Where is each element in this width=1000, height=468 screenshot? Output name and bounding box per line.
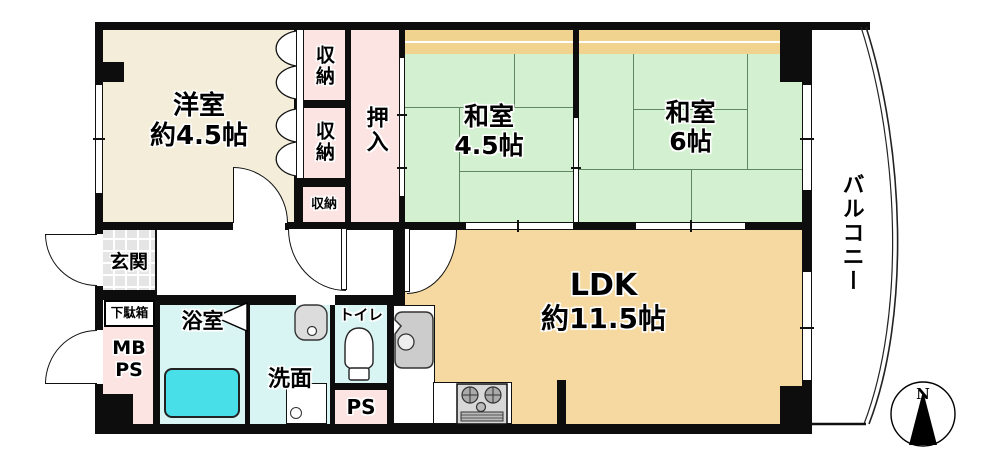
compass: N xyxy=(886,377,962,455)
label-ldk: LDK 約11.5帖 xyxy=(405,266,802,338)
label-pipe-space: PS xyxy=(335,392,387,422)
label-western-room: 洋室 約4.5帖 xyxy=(103,90,295,154)
label-closet-mid: 収納 xyxy=(301,112,345,172)
label-western-size: 約4.5帖 xyxy=(150,122,248,152)
label-ldk-size: 約11.5帖 xyxy=(541,303,666,335)
floorplan-canvas: N 洋室 約4.5帖 収納 収納 収納 押入 和室 4.5帖 和室 6帖 LDK… xyxy=(0,0,1000,468)
label-bathroom: 浴室 xyxy=(160,306,245,336)
label-japanese45-size: 4.5帖 xyxy=(454,132,523,161)
label-genkan: 玄関 xyxy=(103,250,155,276)
label-getabako: 下駄箱 xyxy=(111,306,149,320)
compass-north-label: N xyxy=(916,385,930,403)
getabako-box: 下駄箱 xyxy=(104,300,155,327)
label-japanese6: 和室 6帖 xyxy=(579,96,802,160)
label-closet-top: 収納 xyxy=(301,36,345,96)
label-toilet: トイレ xyxy=(335,306,387,326)
label-ldk-name: LDK xyxy=(570,269,637,304)
label-mb-ps: MB PS xyxy=(103,332,155,388)
label-western-name: 洋室 xyxy=(173,92,225,122)
label-japanese45: 和室 4.5帖 xyxy=(405,100,573,164)
label-japanese45-name: 和室 xyxy=(464,103,514,132)
label-closet-small: 収納 xyxy=(303,195,345,215)
label-balcony: バルコニー xyxy=(826,158,876,308)
label-japanese6-size: 6帖 xyxy=(669,128,711,157)
label-japanese6-name: 和室 xyxy=(665,99,715,128)
label-oshiire: 押入 xyxy=(351,92,399,168)
label-washroom: 洗面 xyxy=(250,364,330,396)
label-ps-riser: PS xyxy=(115,360,143,382)
label-mb: MB xyxy=(112,338,145,360)
